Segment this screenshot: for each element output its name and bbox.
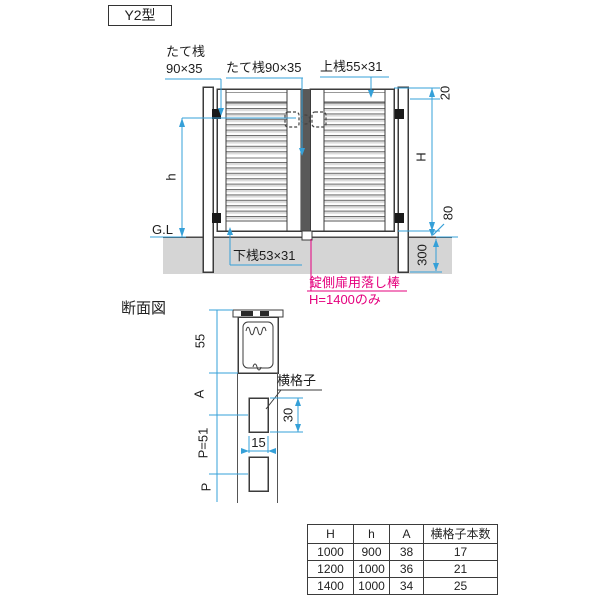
gate-leaf-left <box>217 89 301 231</box>
technical-drawing <box>0 0 600 600</box>
model-title: Y2型 <box>108 5 172 26</box>
table-cell: 1200 <box>308 561 354 578</box>
label-stile-center: たて桟90×35 <box>226 61 302 76</box>
note-line1: 錠側扉用落し棒 <box>309 276 400 291</box>
label-top-rail: 上桟55×31 <box>320 60 383 75</box>
label-bottom-rail: 下桟53×31 <box>233 249 296 264</box>
table-cell: 21 <box>424 561 498 578</box>
table-header-cell: A <box>390 525 424 544</box>
table-header-row: H h A 横格子本数 <box>308 525 498 544</box>
table-cell: 1000 <box>308 544 354 561</box>
dim-pitch: P=51 <box>197 428 212 459</box>
gate-leaf-right <box>310 89 394 231</box>
catalog-drawing-page: Y2型 たて桟 90×35 たて桟90×35 上桟55×31 下桟53×31 G… <box>0 0 600 600</box>
label-ground-level: G.L <box>152 223 173 238</box>
dim-gate-height: H <box>415 152 430 161</box>
drop-rod <box>302 231 312 240</box>
dim-lattice-height: 30 <box>282 408 297 422</box>
post-left <box>203 87 213 272</box>
table-header-cell: h <box>354 525 390 544</box>
label-lattice: 横格子 <box>277 374 316 389</box>
table-cell: 1000 <box>354 578 390 595</box>
dim-top-rail-height: 55 <box>194 334 209 348</box>
spec-table: H h A 横格子本数 1000 900 38 17 1200 1000 36 … <box>307 524 498 595</box>
table-header-cell: H <box>308 525 354 544</box>
table-cell: 1000 <box>354 561 390 578</box>
dim-bottom-clearance: 80 <box>442 206 457 220</box>
dim-lattice-width: 15 <box>250 436 267 451</box>
table-cell: 38 <box>390 544 424 561</box>
table-row: 1200 1000 36 21 <box>308 561 498 578</box>
table-cell: 34 <box>390 578 424 595</box>
label-stile-left-line1: たて桟 <box>166 45 205 60</box>
dim-embed-depth: 300 <box>416 244 431 266</box>
table-cell: 17 <box>424 544 498 561</box>
table-cell: 900 <box>354 544 390 561</box>
table-row: 1400 1000 34 25 <box>308 578 498 595</box>
note-line2: H=1400のみ <box>309 293 381 308</box>
section-title: 断面図 <box>121 297 166 318</box>
dim-leaf-height: h <box>165 173 180 180</box>
lattice-leader <box>266 390 322 409</box>
table-row: 1000 900 38 17 <box>308 544 498 561</box>
table-header-cell: 横格子本数 <box>424 525 498 544</box>
table-cell: 1400 <box>308 578 354 595</box>
dim-p: P <box>200 483 215 492</box>
dim-a: A <box>193 390 208 399</box>
label-stile-left-line2: 90×35 <box>166 62 203 77</box>
table-cell: 36 <box>390 561 424 578</box>
table-cell: 25 <box>424 578 498 595</box>
dim-top-clearance: 20 <box>439 86 454 100</box>
